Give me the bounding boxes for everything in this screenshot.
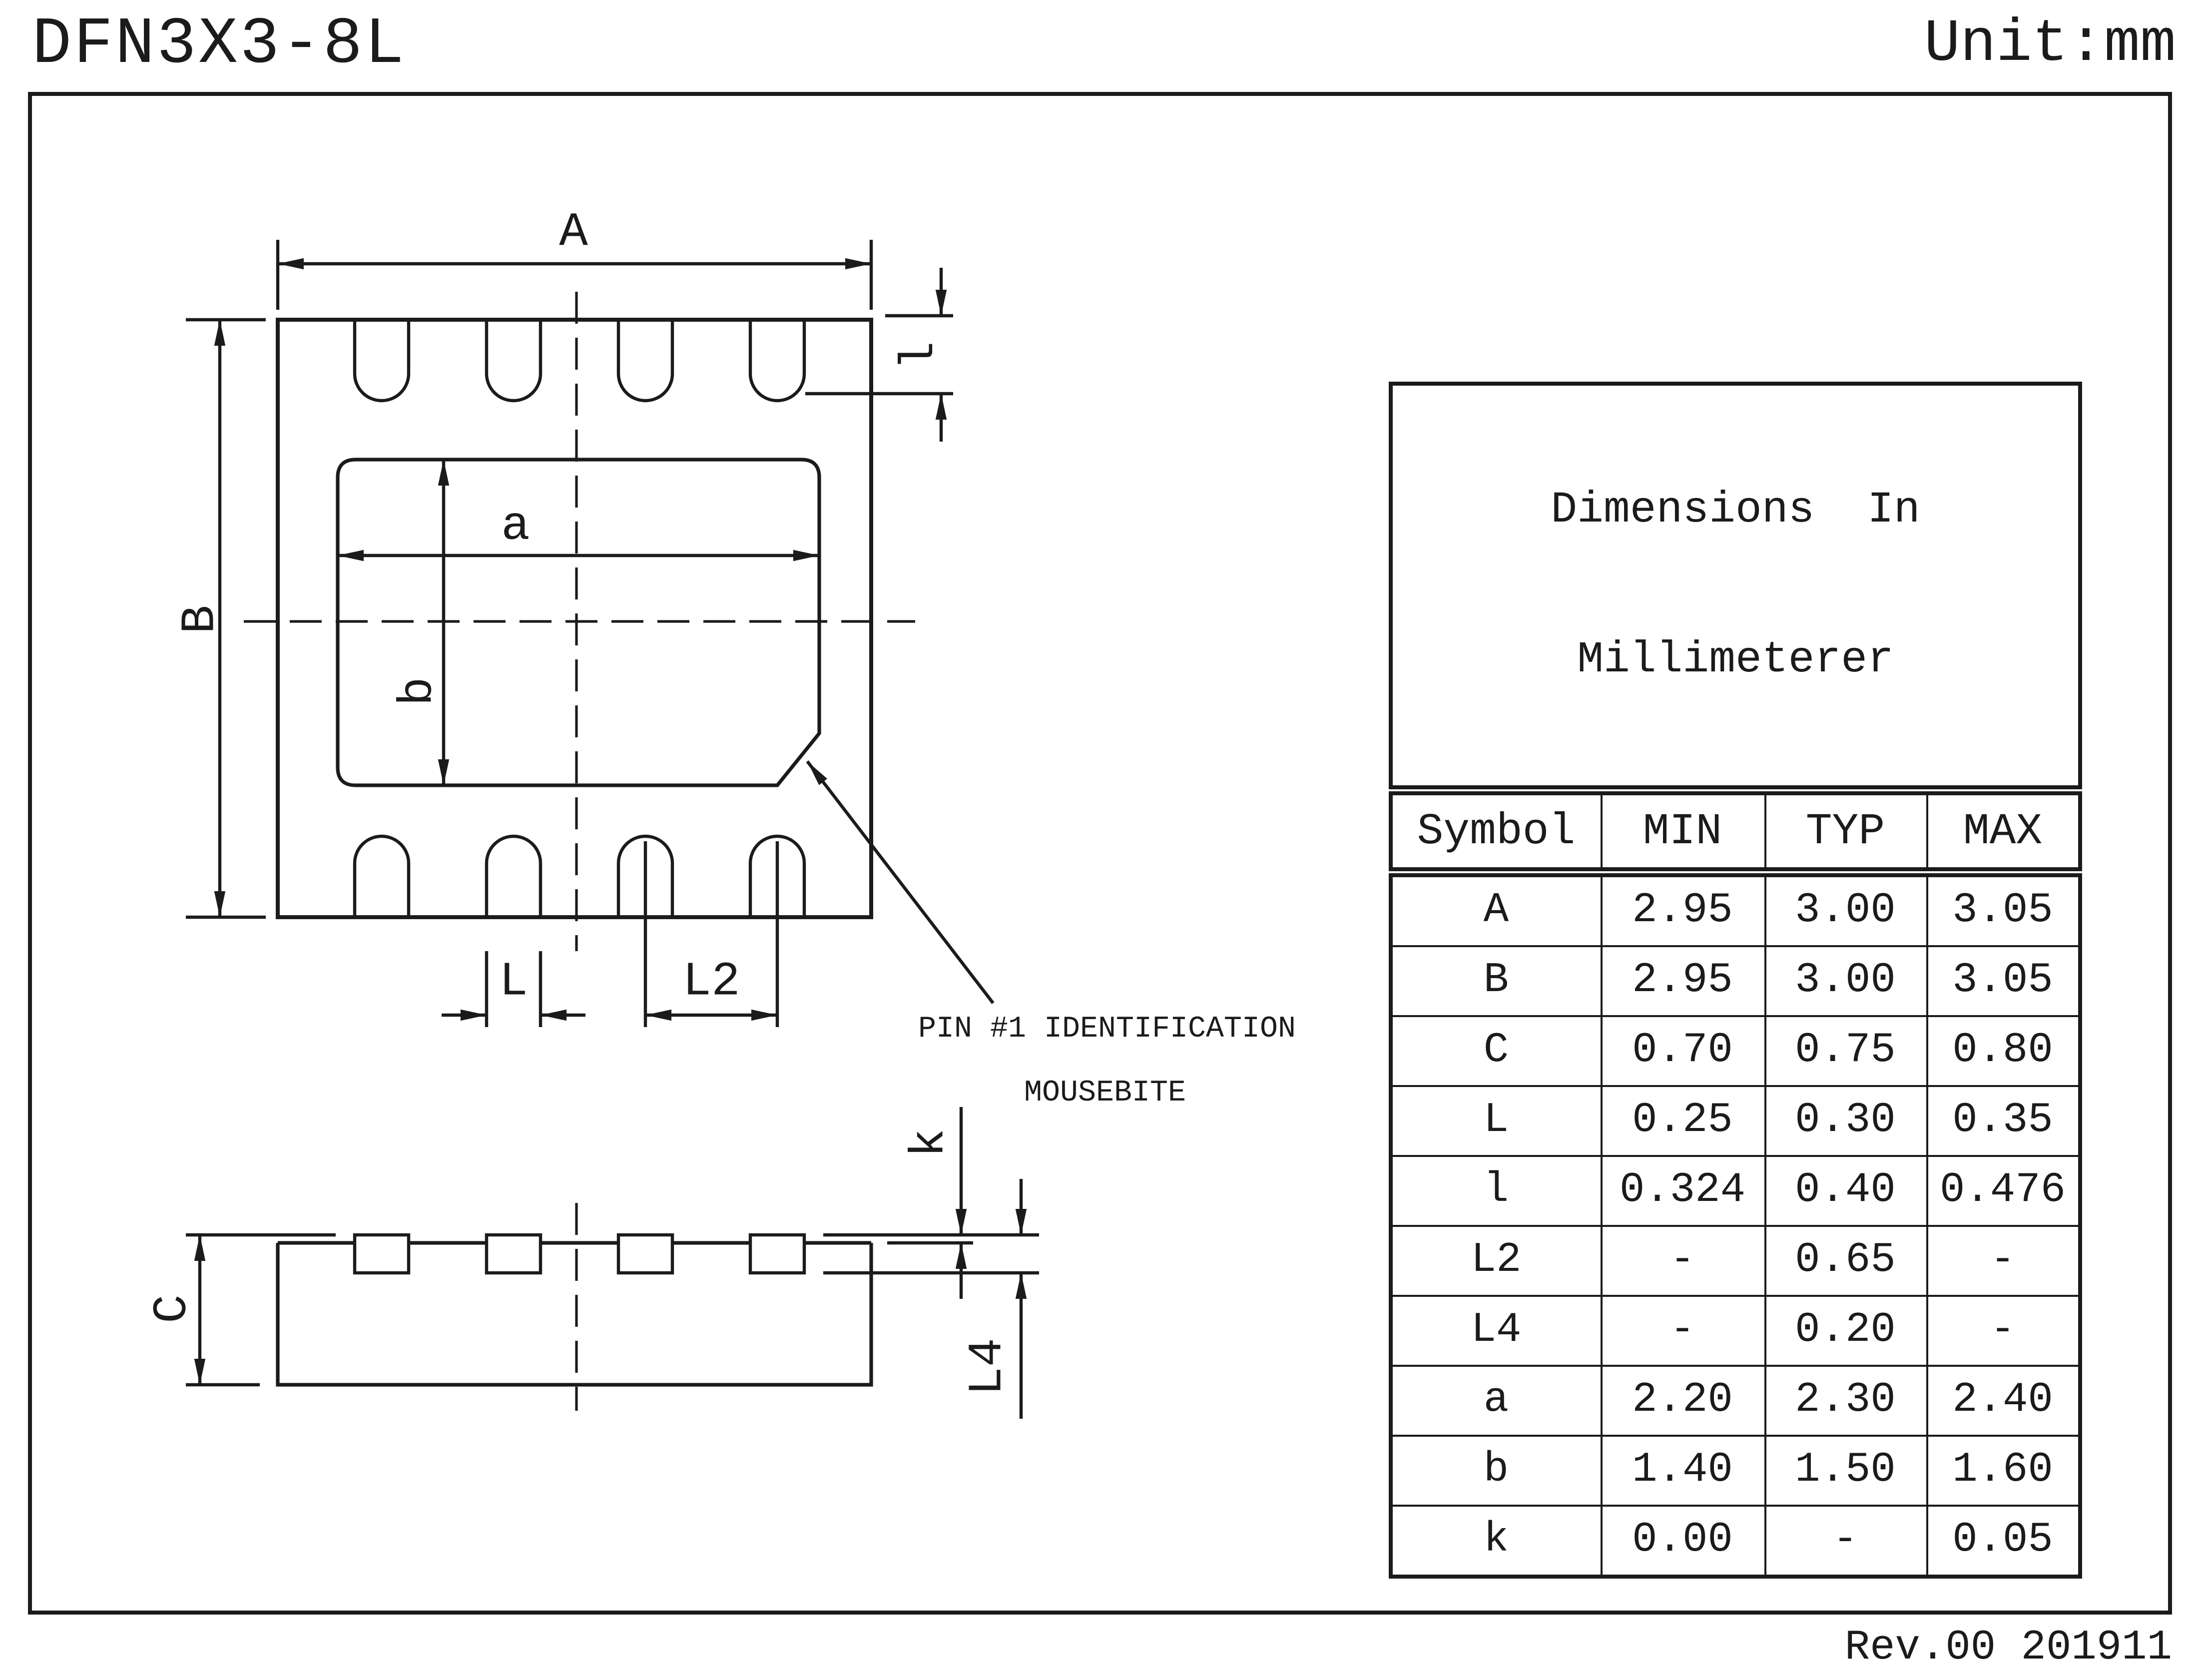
cell-min: 1.40 [1601,1436,1764,1506]
cell-typ: 3.00 [1764,946,1926,1016]
table-row: C 0.70 0.75 0.80 [1391,1016,2080,1086]
dim-a-arrowhead-right [793,550,819,561]
cell-max: 3.05 [1926,946,2080,1016]
dim-L2-label: L2 [682,955,740,1009]
dim-l-label: l [893,341,947,370]
lead-bottom-2 [487,836,541,917]
dim-A-arrowhead-left [278,258,304,269]
side-lead-tab-4 [750,1235,804,1273]
cell-min: - [1601,1296,1764,1366]
dim-a-label: a [501,499,530,554]
cell-max: - [1926,1226,2080,1296]
dim-C-arrowhead-bottom [194,1359,205,1385]
cell-symbol: k [1391,1506,1601,1577]
cell-max: 2.40 [1926,1366,2080,1436]
table-row: A 2.95 3.00 3.05 [1391,872,2080,946]
cell-symbol: L [1391,1086,1601,1156]
table-row: L 0.25 0.30 0.35 [1391,1086,2080,1156]
cell-typ: 0.20 [1764,1296,1926,1366]
cell-typ: 2.30 [1764,1366,1926,1436]
cell-symbol: A [1391,872,1601,946]
side-body-outline [278,1243,871,1385]
table-row: b 1.40 1.50 1.60 [1391,1436,2080,1506]
dim-l-arrowhead-up [936,394,947,420]
dim-C-label: C [145,1294,200,1323]
pin1-annotation-line2: MOUSEBITE [1024,1076,1186,1110]
drawing-sheet: DFN3X3-8L Unit:mm Rev.00 201911 [0,0,2200,1680]
pin1-annotation-line1: PIN #1 IDENTIFICATION [918,1012,1296,1046]
dim-b-arrowhead-top [438,460,449,486]
dim-L2-arrowhead-left [645,1010,671,1021]
table-row: k 0.00 - 0.05 [1391,1506,2080,1577]
column-header-typ: TYP [1764,790,1926,872]
cell-max: 0.80 [1926,1016,2080,1086]
dim-B-label: B [173,605,228,634]
cell-max: 0.35 [1926,1086,2080,1156]
cell-symbol: L2 [1391,1226,1601,1296]
dim-L-label: L [499,955,528,1009]
cell-symbol: l [1391,1156,1601,1226]
cell-min: 0.70 [1601,1016,1764,1086]
cell-max: - [1926,1296,2080,1366]
cell-min: - [1601,1226,1764,1296]
table-row: B 2.95 3.00 3.05 [1391,946,2080,1016]
table-row: l 0.324 0.40 0.476 [1391,1156,2080,1226]
column-header-max: MAX [1926,790,2080,872]
cell-typ: 0.75 [1764,1016,1926,1086]
lead-top-3 [618,320,672,401]
dim-A-arrowhead-right [845,258,871,269]
dim-k-label: k [903,1128,957,1157]
lead-top-2 [487,320,541,401]
side-lead-tab-2 [487,1235,541,1273]
cell-typ: 0.65 [1764,1226,1926,1296]
cell-min: 2.95 [1601,946,1764,1016]
cell-max: 0.05 [1926,1506,2080,1577]
column-header-min: MIN [1601,790,1764,872]
table-row: L4 - 0.20 - [1391,1296,2080,1366]
cell-symbol: B [1391,946,1601,1016]
dim-L-arrowhead-left [461,1010,487,1021]
column-header-symbol: Symbol [1391,790,1601,872]
cell-max: 1.60 [1926,1436,2080,1506]
cell-min: 2.95 [1601,872,1764,946]
table-row: L2 - 0.65 - [1391,1226,2080,1296]
dim-k-arrowhead-up [956,1243,967,1269]
mousebite-leader-line [807,761,993,1003]
cell-symbol: C [1391,1016,1601,1086]
cell-typ: 0.40 [1764,1156,1926,1226]
dim-B-arrowhead-bottom [214,891,225,917]
dim-C-arrowhead-top [194,1235,205,1261]
cell-max: 3.05 [1926,872,2080,946]
dim-a-arrowhead-left [338,550,364,561]
lead-top-1 [355,320,409,401]
cell-typ: - [1764,1506,1926,1577]
cell-symbol: b [1391,1436,1601,1506]
table-row: a 2.20 2.30 2.40 [1391,1366,2080,1436]
dim-L-arrowhead-right [541,1010,566,1021]
cell-typ: 3.00 [1764,872,1926,946]
cell-min: 0.00 [1601,1506,1764,1577]
table-title-cell: Dimensions In Millimeterer [1391,384,2080,790]
page: DFN3X3-8L Unit:mm Rev.00 201911 [0,0,2200,1680]
dim-A-label: A [559,205,588,260]
lead-bottom-1 [355,836,409,917]
cell-min: 0.25 [1601,1086,1764,1156]
table-title-row: Dimensions In Millimeterer [1391,384,2080,790]
package-body-outline [278,320,871,917]
table-header-row: Symbol MIN TYP MAX [1391,790,2080,872]
dim-k-arrowhead-down [956,1209,967,1235]
table-title-line2: Millimeterer [1393,635,2078,685]
dim-L4-label: L4 [961,1338,1015,1395]
dim-L4-arrowhead-up [1016,1273,1027,1299]
side-lead-tab-3 [618,1235,672,1273]
cell-typ: 1.50 [1764,1436,1926,1506]
dim-b-label: b [391,677,446,706]
dim-b-arrowhead-bottom [438,759,449,785]
dim-B-arrowhead-top [214,320,225,346]
cell-max: 0.476 [1926,1156,2080,1226]
lead-top-4 [750,320,804,401]
dim-L2-arrowhead-right [751,1010,777,1021]
cell-min: 0.324 [1601,1156,1764,1226]
dim-l-arrowhead-down [936,290,947,316]
cell-symbol: a [1391,1366,1601,1436]
table-title-line1: Dimensions In [1393,486,2078,536]
side-lead-tab-1 [355,1235,409,1273]
dim-L4-arrowhead-down [1016,1209,1027,1235]
dimensions-table: Dimensions In Millimeterer Symbol MIN TY… [1389,382,2082,1579]
cell-typ: 0.30 [1764,1086,1926,1156]
cell-min: 2.20 [1601,1366,1764,1436]
cell-symbol: L4 [1391,1296,1601,1366]
